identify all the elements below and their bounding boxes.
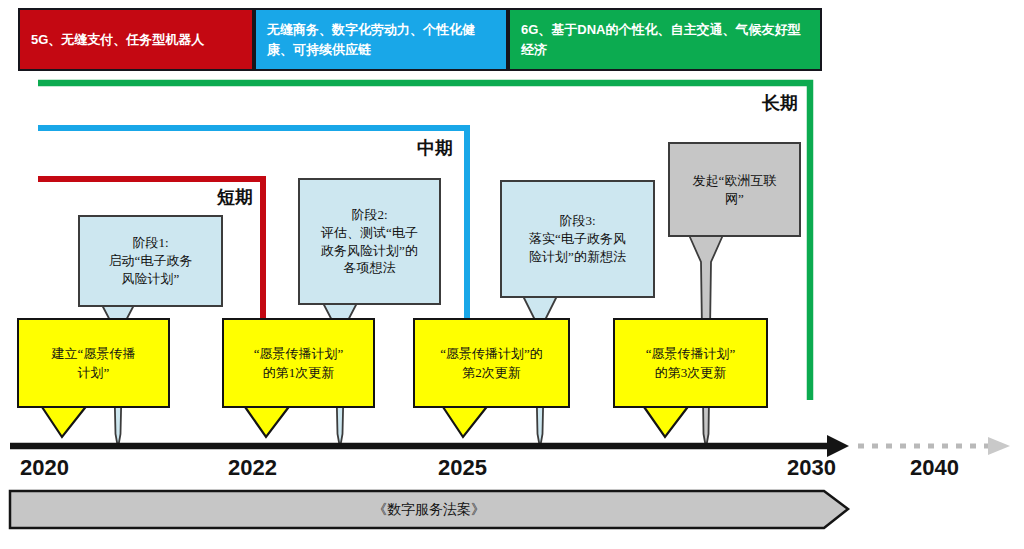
milestone1-tail [40, 404, 88, 437]
phase1-callout: 阶段1: 启动“电子政务 风险计划” [78, 215, 223, 307]
milestone3-tail [441, 404, 489, 437]
milestone2-tail [243, 404, 291, 437]
milestone-update-3: “愿景传播计划” 的第3次更新 [613, 318, 768, 408]
european-internet-callout: 发起“欧洲互联 网” [668, 142, 801, 237]
digital-services-act-label: 《数字服务法案》 [10, 501, 848, 519]
phase3-callout: 阶段3: 落实“电子政务风 险计划”的新想法 [500, 180, 655, 298]
milestone-establish-plan: 建立“愿景传播 计划” [17, 318, 170, 408]
roadmap-timeline-diagram: 5G、无缝支付、任务型机器人 无缝商务、数字化劳动力、个性化健康、可持续供应链 … [0, 0, 1024, 549]
phase2-callout: 阶段2: 评估、测试“电子 政务风险计划”的 各项想法 [298, 178, 441, 305]
milestone-update-1: “愿景传播计划” 的第1次更新 [222, 318, 375, 408]
milestone-update-2: “愿景传播计划”的 第2次更新 [413, 318, 570, 408]
milestone4-tail [642, 404, 690, 437]
